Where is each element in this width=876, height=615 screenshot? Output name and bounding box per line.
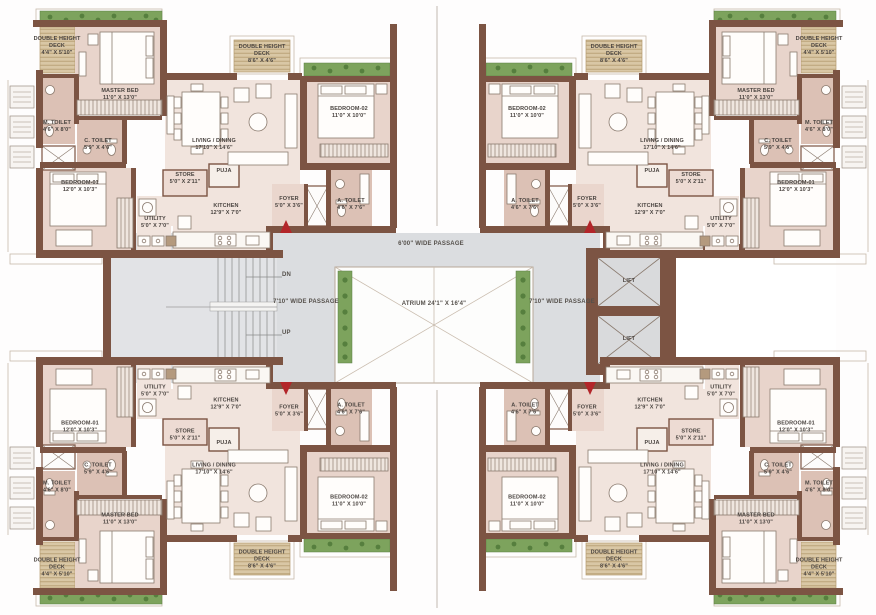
label-bedroom-01: BEDROOM-0112'0" X 10'3" [40, 421, 120, 435]
label-a-toilet: A. TOILET4'6" X 7'6" [326, 403, 376, 417]
label-m-toilet: M. TOILET4'6" X 8'0" [34, 120, 80, 134]
label-m-toilet: M. TOILET4'6" X 8'0" [796, 120, 842, 134]
label-store: STORE5'0" X 2'11" [162, 172, 208, 186]
label-store: STORE5'0" X 2'11" [668, 429, 714, 443]
label-c-toilet: C. TOILET5'9" X 4'6" [72, 463, 124, 477]
label-bedroom-01: BEDROOM-0112'0" X 10'3" [40, 180, 120, 194]
label-utility: UTILITY5'0" X 7'0" [134, 385, 176, 399]
label-utility: UTILITY5'0" X 7'0" [700, 216, 742, 230]
label-deck-living: DOUBLE HEIGHT DECK8'6" X 4'6" [234, 44, 290, 65]
label-deck-living: DOUBLE HEIGHT DECK8'6" X 4'6" [586, 550, 642, 571]
label-a-toilet: A. TOILET4'6" X 7'6" [500, 403, 550, 417]
floor-plan: DOUBLE HEIGHT DECK4'4" X 5'10" MASTER BE… [0, 0, 876, 615]
label-kitchen: KITCHEN12'9" X 7'0" [610, 203, 690, 217]
label-living-dining: LIVING / DINING17'10" X 14'6" [616, 463, 708, 477]
label-deck-living: DOUBLE HEIGHT DECK8'6" X 4'6" [234, 550, 290, 571]
label-puja: PUJA [206, 440, 242, 447]
label-deck-living: DOUBLE HEIGHT DECK8'6" X 4'6" [586, 44, 642, 65]
label-living-dining: LIVING / DINING17'10" X 14'6" [168, 463, 260, 477]
label-deck-master: DOUBLE HEIGHT DECK4'4" X 5'10" [795, 36, 843, 57]
label-utility: UTILITY5'0" X 7'0" [700, 385, 742, 399]
label-store: STORE5'0" X 2'11" [668, 172, 714, 186]
label-living-dining: LIVING / DINING17'10" X 14'6" [616, 138, 708, 152]
unit-bottom-left: DOUBLE HEIGHT DECK4'4" X 5'10" MASTER BE… [0, 308, 438, 615]
label-foyer: FOYER5'0" X 3'6" [569, 196, 605, 210]
label-foyer: FOYER5'0" X 3'6" [569, 405, 605, 419]
label-living-dining: LIVING / DINING17'10" X 14'6" [168, 138, 260, 152]
label-foyer: FOYER5'0" X 3'6" [271, 405, 307, 419]
label-master-bed: MASTER BED11'0" X 13'0" [714, 513, 798, 527]
label-master-bed: MASTER BED11'0" X 13'0" [714, 88, 798, 102]
unit-top-left: DOUBLE HEIGHT DECK4'4" X 5'10" MASTER BE… [0, 0, 438, 307]
label-a-toilet: A. TOILET4'6" X 7'6" [326, 198, 376, 212]
unit-bottom-right: DOUBLE HEIGHT DECK4'4" X 5'10" MASTER BE… [438, 308, 876, 615]
label-deck-master: DOUBLE HEIGHT DECK4'4" X 5'10" [33, 558, 81, 579]
label-bedroom-01: BEDROOM-0112'0" X 10'3" [756, 421, 836, 435]
label-a-toilet: A. TOILET4'6" X 7'6" [500, 198, 550, 212]
label-deck-master: DOUBLE HEIGHT DECK4'4" X 5'10" [33, 36, 81, 57]
label-c-toilet: C. TOILET5'9" X 4'6" [72, 138, 124, 152]
label-foyer: FOYER5'0" X 3'6" [271, 196, 307, 210]
label-bedroom-02: BEDROOM-0211'0" X 10'0" [308, 495, 390, 509]
label-bedroom-02: BEDROOM-0211'0" X 10'0" [486, 106, 568, 120]
label-c-toilet: C. TOILET5'9" X 4'6" [752, 138, 804, 152]
label-utility: UTILITY5'0" X 7'0" [134, 216, 176, 230]
label-kitchen: KITCHEN12'9" X 7'0" [610, 398, 690, 412]
label-puja: PUJA [634, 440, 670, 447]
label-kitchen: KITCHEN12'9" X 7'0" [186, 203, 266, 217]
label-c-toilet: C. TOILET5'9" X 4'6" [752, 463, 804, 477]
label-master-bed: MASTER BED11'0" X 13'0" [78, 513, 162, 527]
label-kitchen: KITCHEN12'9" X 7'0" [186, 398, 266, 412]
label-m-toilet: M. TOILET4'6" X 8'0" [796, 481, 842, 495]
label-store: STORE5'0" X 2'11" [162, 429, 208, 443]
label-bedroom-01: BEDROOM-0112'0" X 10'3" [756, 180, 836, 194]
label-puja: PUJA [206, 168, 242, 175]
label-m-toilet: M. TOILET4'6" X 8'0" [34, 481, 80, 495]
label-bedroom-02: BEDROOM-0211'0" X 10'0" [486, 495, 568, 509]
unit-top-right: DOUBLE HEIGHT DECK4'4" X 5'10" MASTER BE… [438, 0, 876, 307]
label-master-bed: MASTER BED11'0" X 13'0" [78, 88, 162, 102]
label-puja: PUJA [634, 168, 670, 175]
label-deck-master: DOUBLE HEIGHT DECK4'4" X 5'10" [795, 558, 843, 579]
label-bedroom-02: BEDROOM-0211'0" X 10'0" [308, 106, 390, 120]
